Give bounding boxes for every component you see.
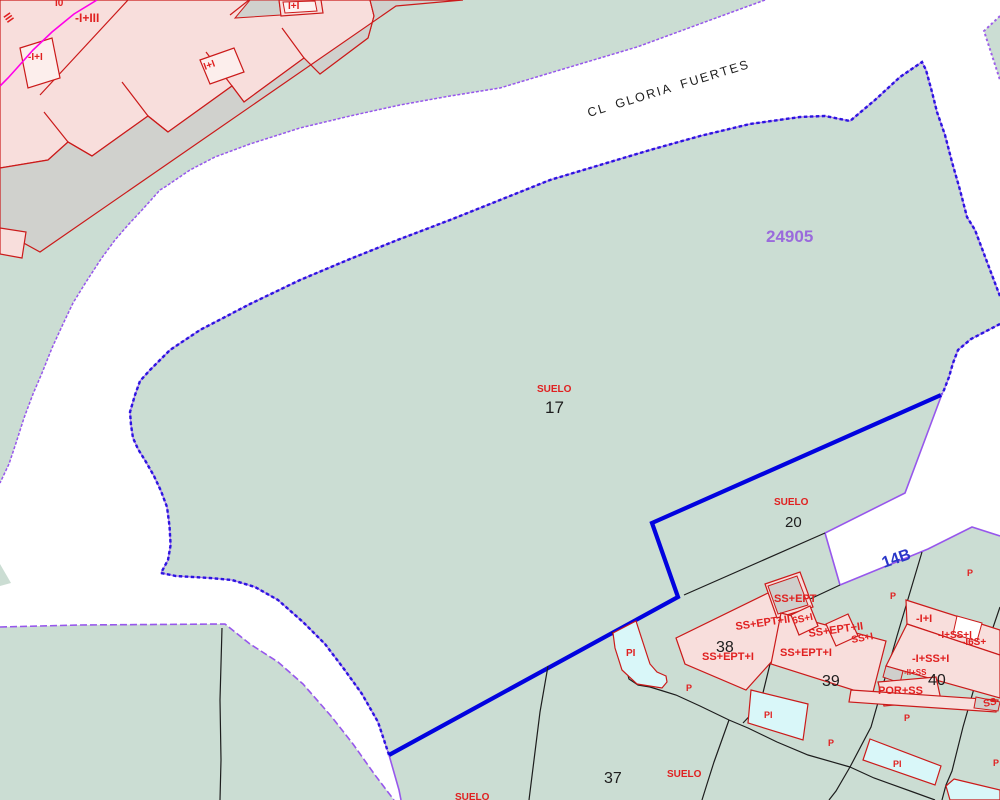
svg-text:P: P <box>890 591 896 601</box>
svg-text:P: P <box>993 758 999 768</box>
svg-text:SUELO: SUELO <box>774 497 809 508</box>
svg-text:SUELO: SUELO <box>537 384 572 395</box>
svg-text:-II+SS: -II+SS <box>904 668 927 677</box>
svg-text:-I+SS+I: -I+SS+I <box>912 653 949 665</box>
svg-text:SUELO: SUELO <box>455 792 490 800</box>
svg-text:POR+SS: POR+SS <box>878 685 923 697</box>
svg-text:P: P <box>904 713 910 723</box>
svg-text:PI: PI <box>893 759 902 769</box>
svg-text:37: 37 <box>604 770 622 787</box>
svg-text:PI: PI <box>626 648 636 659</box>
svg-text:-I6S+: -I6S+ <box>962 637 986 648</box>
svg-text:SUELO: SUELO <box>667 769 702 780</box>
svg-text:24905: 24905 <box>766 227 813 246</box>
svg-text:-I+I: -I+I <box>28 52 43 63</box>
svg-text:-I+III: -I+III <box>75 11 99 25</box>
svg-text:P: P <box>967 568 973 578</box>
svg-text:40: 40 <box>928 672 946 689</box>
svg-text:I0: I0 <box>55 0 64 9</box>
svg-text:I+I: I+I <box>288 1 300 12</box>
svg-text:17: 17 <box>545 398 564 417</box>
svg-text:39: 39 <box>822 673 840 690</box>
svg-text:-I+I: -I+I <box>916 613 932 625</box>
svg-text:P: P <box>828 738 834 748</box>
svg-text:20: 20 <box>785 514 802 531</box>
svg-text:SS+EPT: SS+EPT <box>774 593 817 605</box>
svg-text:38: 38 <box>716 639 734 656</box>
svg-text:PI: PI <box>764 710 773 720</box>
svg-text:SS+EPT+I: SS+EPT+I <box>780 647 832 659</box>
svg-text:P: P <box>686 683 692 693</box>
